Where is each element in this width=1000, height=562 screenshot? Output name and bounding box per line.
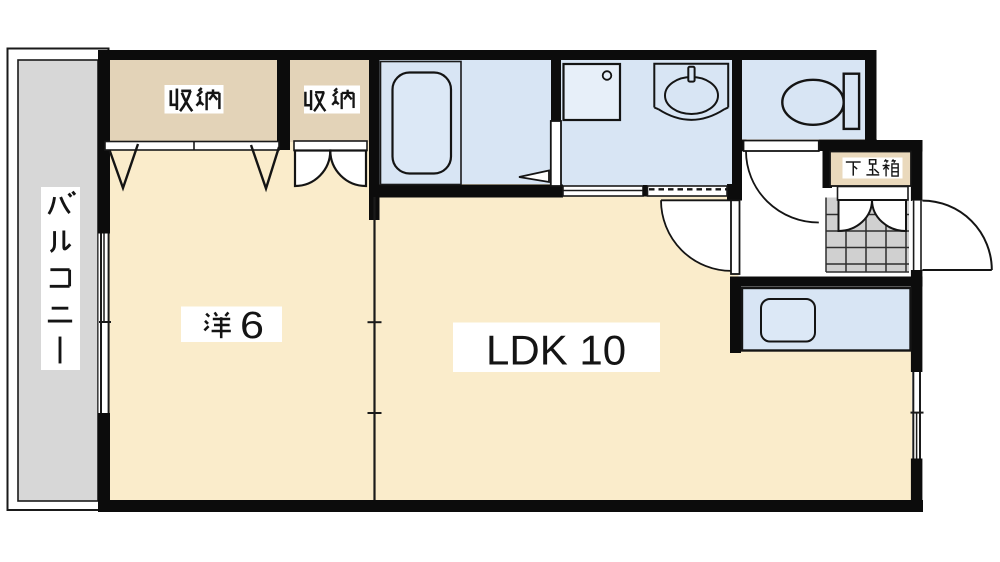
- svg-text:LDK 10: LDK 10: [486, 327, 626, 374]
- svg-text:6: 6: [240, 305, 264, 347]
